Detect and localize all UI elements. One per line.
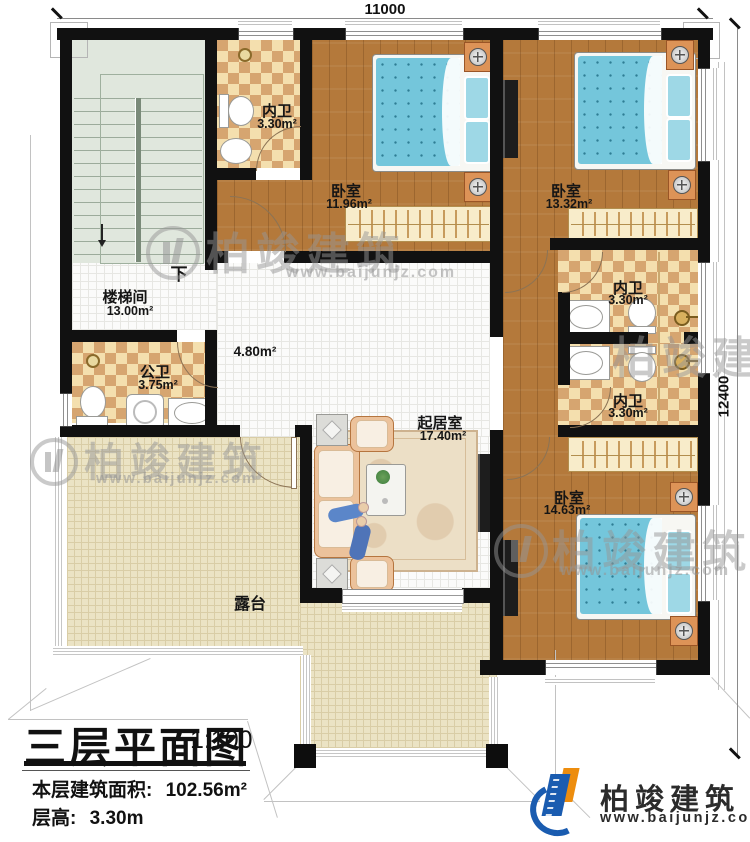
brand-url: www.baijunjz.com (600, 810, 750, 826)
eave-diagonal (711, 677, 750, 719)
eave-line (264, 801, 540, 802)
terrace-floor (300, 603, 497, 748)
hall-area-label: 4.80m² (234, 344, 277, 359)
brand-logo-icon (534, 764, 592, 828)
nightstand (670, 616, 698, 646)
dimension-tick (729, 747, 741, 759)
pendant-light-icon (86, 354, 100, 368)
title-height-row: 层高: 3.30m (32, 803, 143, 830)
sink-icon (220, 138, 252, 164)
window (538, 28, 662, 40)
door-leaf (291, 437, 297, 489)
sofa-cushion (356, 560, 388, 588)
wall (490, 252, 503, 337)
stair-outline (100, 74, 204, 264)
nightstand (464, 42, 492, 72)
bed-pillow (666, 118, 692, 162)
person-figure (356, 516, 367, 527)
watermark-logo-icon (45, 452, 51, 472)
wall (284, 251, 503, 263)
shower-head-icon (686, 316, 698, 318)
wardrobe-rail (571, 455, 695, 456)
wall (295, 425, 312, 437)
room-area-living: 17.40m² (420, 429, 467, 443)
floor-plan-canvas: 内卫 3.30m² 卧室 11.96m² 卧室 13.32m² 下 楼梯间 13… (0, 0, 750, 842)
wall (60, 425, 240, 437)
wall (217, 168, 256, 180)
pendant-light-icon (238, 48, 252, 62)
wall (480, 660, 545, 675)
eave-line (30, 135, 31, 711)
nightstand-handle-icon (469, 48, 487, 66)
bed-pillow (666, 572, 692, 614)
wall (205, 40, 217, 270)
nightstand-handle-icon (469, 178, 487, 196)
terrace-railing (301, 655, 311, 748)
wardrobe-rail (348, 224, 489, 225)
window (345, 28, 464, 40)
wardrobe (568, 437, 698, 472)
wall (217, 251, 228, 263)
wall (300, 40, 312, 180)
bed-sheet (442, 58, 460, 166)
shower-head-icon (674, 354, 690, 370)
bed-sheet (644, 518, 662, 614)
stair-direction-arrow (101, 224, 103, 240)
terrace-railing (53, 437, 64, 649)
wall (60, 330, 177, 342)
brand-logo-icon (523, 777, 590, 842)
nightstand (464, 172, 492, 202)
nightstand-handle-icon (671, 46, 689, 64)
nightstand-handle-icon (673, 176, 691, 194)
wardrobe (568, 208, 698, 240)
nightstand-handle-icon (675, 488, 693, 506)
person-figure (358, 502, 369, 513)
stair-center-rail (135, 98, 141, 262)
washing-machine-icon (133, 400, 157, 424)
terrace-railing (53, 646, 303, 656)
wall (300, 437, 312, 603)
stair-down-label: 下 (171, 260, 188, 285)
title-underline-thin (22, 770, 250, 771)
sofa-cushion (356, 420, 388, 448)
title-underline (24, 761, 246, 766)
dimension-tick (729, 17, 741, 29)
room-area-neiwei3: 3.30m² (608, 406, 648, 420)
wall (655, 660, 710, 675)
window-sill (538, 19, 660, 27)
dimension-line-right (737, 28, 738, 758)
room-label-terrace: 露台 (234, 590, 266, 614)
terrace-railing (489, 677, 499, 748)
window-sill (345, 19, 462, 27)
sink-icon (569, 351, 603, 375)
shower-glass (658, 252, 660, 423)
wall (490, 40, 503, 252)
dimension-right: 12400 (716, 367, 733, 427)
window-sill (711, 505, 719, 600)
table-item (382, 498, 388, 504)
nightstand (666, 40, 694, 70)
stair-direction-arrow (98, 240, 106, 247)
nightstand (670, 482, 698, 512)
window (698, 68, 710, 162)
wall (558, 344, 570, 385)
wall (558, 425, 710, 437)
bed-sheet (644, 56, 662, 164)
room-area-bedroom2: 13.32m² (546, 197, 593, 211)
title-scale: 1:100 (190, 726, 253, 755)
floor-height-label: 层高: (32, 808, 76, 829)
bed-pillow (666, 74, 692, 118)
window (60, 393, 72, 427)
shower-head-icon (686, 360, 698, 362)
window (698, 505, 710, 602)
eave-diagonal (30, 658, 151, 711)
wall (300, 588, 342, 603)
wall (558, 292, 570, 332)
tv (503, 540, 518, 616)
terrace-post (486, 744, 508, 768)
room-area-neiwei1: 3.30m² (257, 117, 297, 131)
floor-height-value: 3.30m (90, 808, 144, 829)
wall (558, 332, 648, 344)
sink-icon (569, 305, 603, 329)
nightstand-handle-icon (675, 622, 693, 640)
window-sill (711, 262, 719, 372)
dimension-top: 11000 (365, 1, 406, 18)
title-area-row: 本层建筑面积: 102.56m² (32, 775, 247, 802)
dimension-line-top (57, 18, 713, 19)
nightstand (668, 170, 696, 200)
window-sill (545, 677, 655, 685)
room-area-neiwei2: 3.30m² (608, 293, 648, 307)
bed-pillow (666, 530, 692, 572)
sofa-cushion (318, 450, 354, 498)
floor-area-label: 本层建筑面积: (32, 780, 152, 801)
sliding-door (342, 589, 464, 604)
floor-area-value: 102.56m² (166, 780, 247, 801)
wall (490, 430, 503, 675)
tv (503, 80, 518, 158)
terrace-post (294, 744, 316, 768)
terrace-railing (298, 748, 504, 758)
room-area-stairwell: 13.00m² (107, 304, 154, 318)
room-area-gongwei: 3.75m² (138, 378, 178, 392)
window (238, 28, 294, 40)
bed-pillow (464, 120, 490, 164)
toilet-icon (228, 96, 254, 126)
window-sill (238, 19, 292, 27)
bed-pillow (464, 76, 490, 120)
flower-vase-icon (376, 470, 390, 484)
hall-floor (217, 263, 490, 342)
room-area-bedroom1: 11.96m² (326, 197, 372, 211)
wardrobe-rail (571, 224, 695, 225)
wardrobe (345, 206, 492, 242)
shower-head-icon (674, 310, 690, 326)
window-sill (711, 68, 719, 160)
window (545, 660, 657, 675)
room-area-bedroom3: 14.63m² (544, 503, 591, 517)
window (698, 262, 710, 374)
toilet-icon (628, 352, 656, 382)
wall (60, 28, 72, 437)
wall (550, 238, 710, 250)
door-threshold (342, 604, 462, 612)
toilet-icon (80, 386, 106, 418)
eave-diagonal (263, 765, 298, 800)
